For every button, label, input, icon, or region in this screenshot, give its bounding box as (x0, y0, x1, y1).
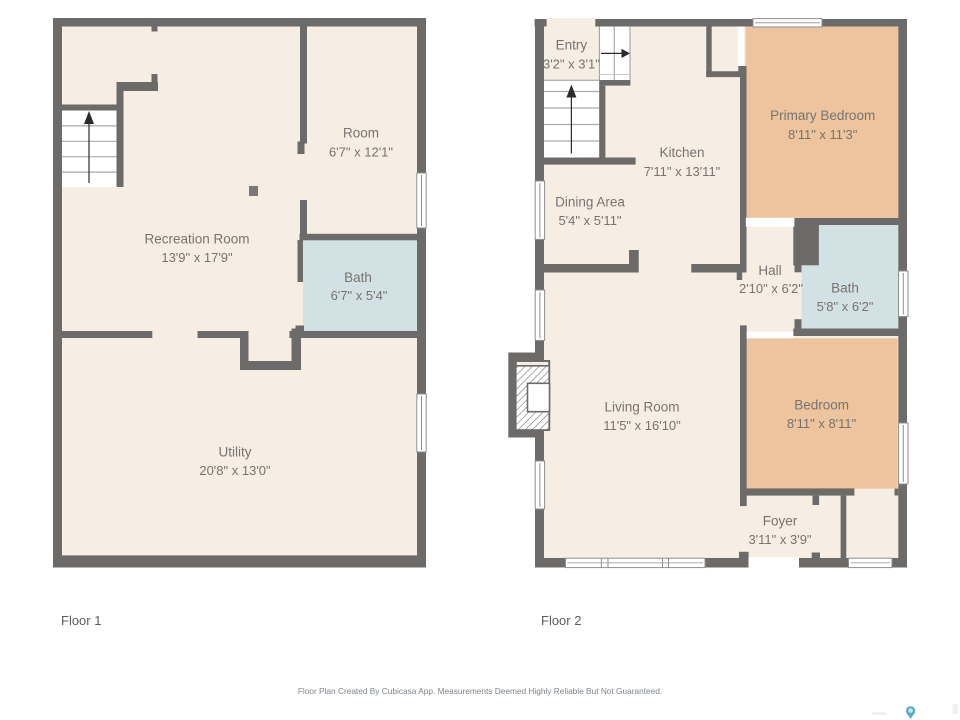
svg-text:Recreation Room: Recreation Room (144, 232, 249, 247)
svg-text:Floor 2: Floor 2 (541, 613, 581, 628)
svg-text:6'7" x 12'1": 6'7" x 12'1" (329, 145, 393, 160)
svg-text:6'7" x 5'4": 6'7" x 5'4" (331, 288, 388, 303)
svg-text:Kitchen: Kitchen (659, 145, 704, 160)
svg-text:Bath: Bath (831, 281, 859, 296)
svg-text:3'2" x 3'1": 3'2" x 3'1" (543, 57, 600, 72)
svg-text:Entry: Entry (556, 38, 588, 53)
svg-text:3'11" x 3'9": 3'11" x 3'9" (748, 532, 811, 547)
svg-text:Primary Bedroom: Primary Bedroom (770, 108, 875, 123)
svg-text:Dining Area: Dining Area (555, 195, 625, 210)
svg-text:Foyer: Foyer (763, 514, 798, 529)
svg-text:8'11" x 8'11": 8'11" x 8'11" (787, 416, 857, 431)
svg-text:20'8" x 13'0": 20'8" x 13'0" (199, 463, 271, 478)
svg-text:13'9" x 17'9": 13'9" x 17'9" (161, 250, 233, 265)
svg-text:Floor 1: Floor 1 (61, 613, 101, 628)
svg-text:Hall: Hall (758, 263, 781, 278)
svg-text:5'4" x 5'11": 5'4" x 5'11" (558, 213, 621, 228)
svg-text:Floor Plan Created By Cubicasa: Floor Plan Created By Cubicasa App. Meas… (298, 686, 662, 696)
svg-text:Living Room: Living Room (604, 400, 679, 415)
svg-text:5'8" x 6'2": 5'8" x 6'2" (817, 299, 874, 314)
svg-text:Bath: Bath (344, 270, 372, 285)
svg-text:Room: Room (343, 126, 379, 141)
svg-text:11'5" x 16'10": 11'5" x 16'10" (603, 418, 681, 433)
svg-text:Utility: Utility (219, 445, 252, 460)
svg-text:7'11" x 13'11": 7'11" x 13'11" (644, 164, 721, 179)
svg-text:8'11" x 11'3": 8'11" x 11'3" (788, 127, 858, 142)
svg-text:Bedroom: Bedroom (794, 398, 849, 413)
svg-text:2'10" x 6'2": 2'10" x 6'2" (739, 281, 803, 296)
